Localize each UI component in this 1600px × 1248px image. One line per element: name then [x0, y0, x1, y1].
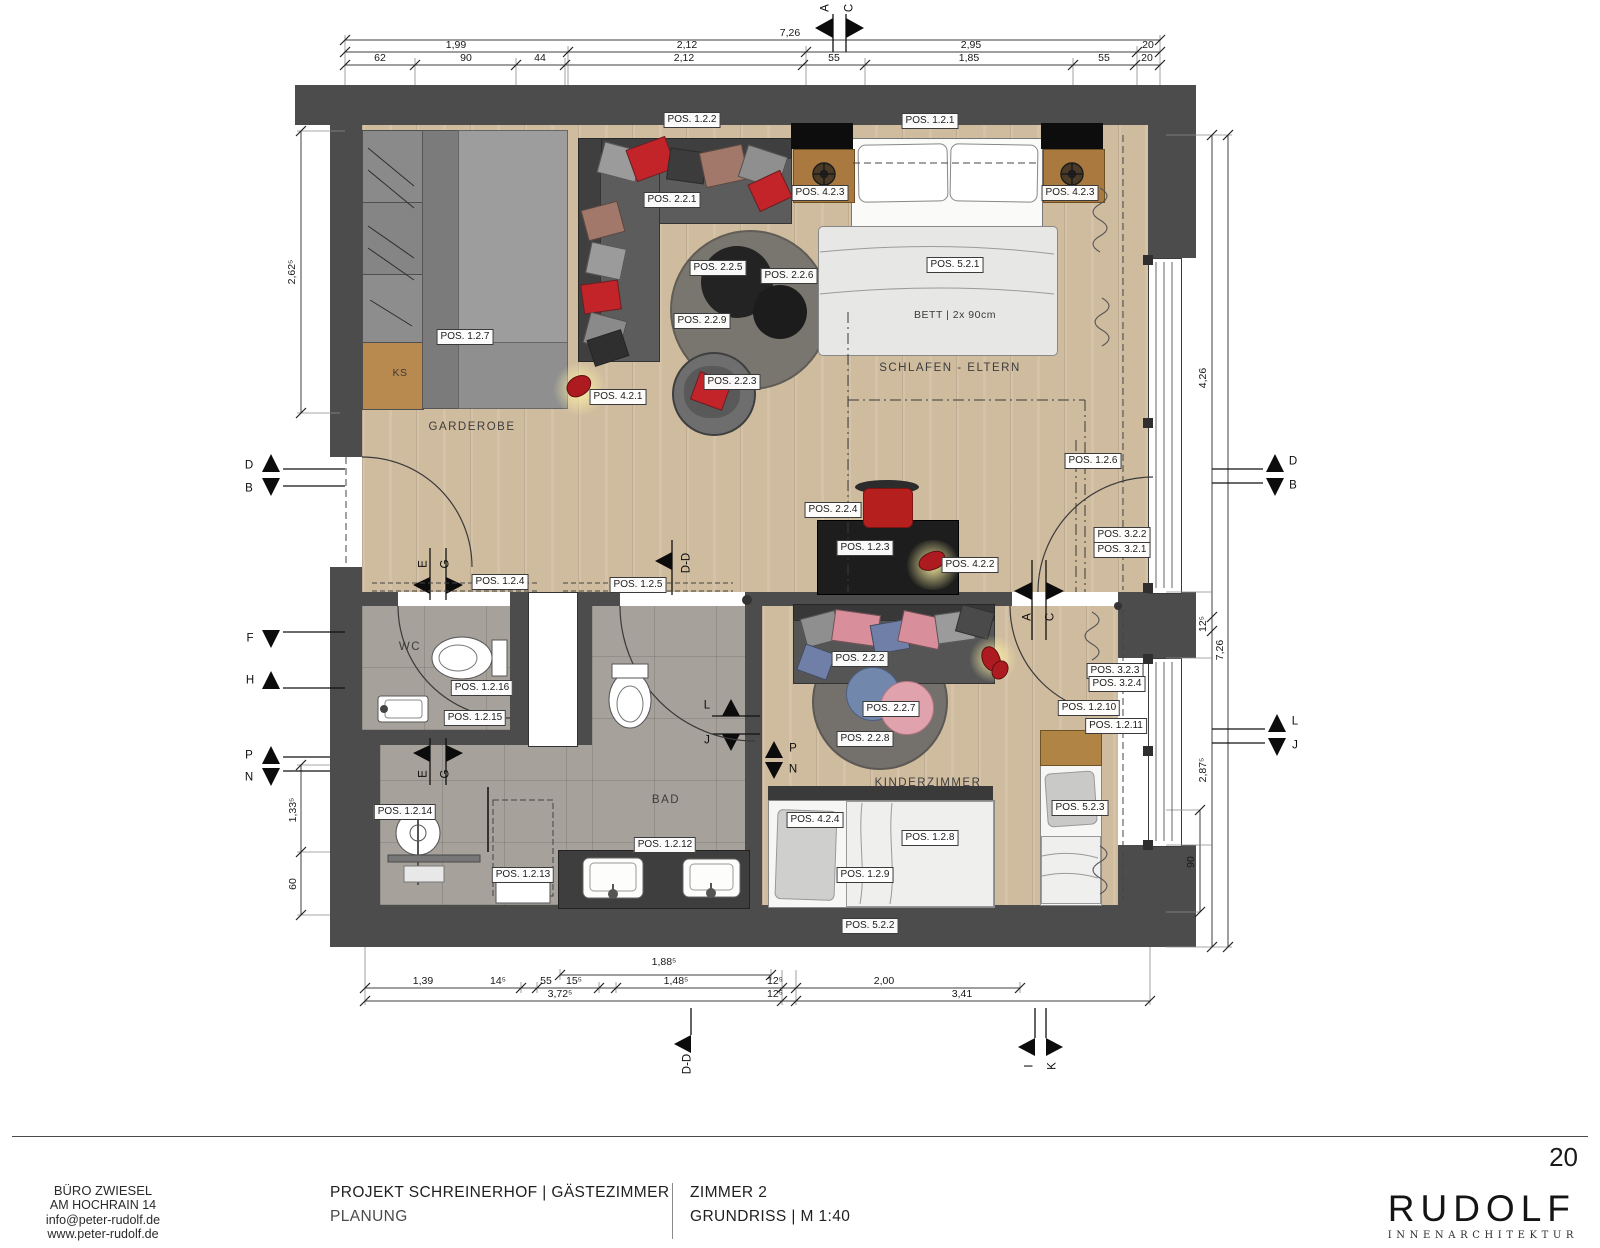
pos-label: POS. 2.2.5 [690, 260, 747, 276]
sheet-title-block: ZIMMER 2 GRUNDRISS | M 1:40 [690, 1184, 850, 1226]
section-marker-letter: H [246, 675, 254, 687]
project-title-block: PROJEKT SCHREINERHOF | GÄSTEZIMMER PLANU… [330, 1184, 669, 1226]
plan-text: BETT | 2x 90cm [914, 309, 996, 321]
dimension-text: 3,72⁵ [548, 989, 573, 1000]
sheet-title: ZIMMER 2 [690, 1184, 850, 1202]
dimension-text: 7,26 [1215, 640, 1226, 660]
dimension-text: 2,00 [874, 976, 894, 987]
sheet-title-divider [672, 1183, 673, 1239]
logo-name: RUDOLF [1388, 1190, 1578, 1227]
title-block-divider [12, 1136, 1588, 1137]
pos-label: POS. 2.2.7 [863, 701, 920, 717]
dimension-text: 55 [1098, 53, 1110, 64]
section-marker-letter: C [844, 4, 856, 12]
pos-label: POS. 1.2.5 [610, 577, 667, 593]
dimension-text: 7,26 [780, 28, 800, 39]
section-marker-letter: B [245, 483, 253, 495]
drawing-sheet: POS. 1.2.2POS. 1.2.1POS. 2.2.1POS. 4.2.3… [0, 0, 1600, 1248]
section-marker-letter: J [1292, 740, 1298, 752]
page-number: 20 [1549, 1142, 1578, 1173]
section-marker-letter: J [704, 735, 710, 747]
pos-label: POS. 2.2.9 [674, 313, 731, 329]
dimension-text: 44 [534, 53, 546, 64]
dimension-text: 62 [374, 53, 386, 64]
pos-label: POS. 4.2.1 [590, 389, 647, 405]
dimension-text: 2,12 [677, 40, 697, 51]
dimension-text: 20 [1141, 53, 1153, 64]
dimension-text: 1,48⁵ [664, 976, 689, 987]
section-marker-letter: E [418, 770, 430, 778]
pos-label: POS. 1.2.13 [492, 867, 554, 883]
dimension-text: 12⁵ [1198, 616, 1209, 632]
pos-label: POS. 4.2.3 [792, 185, 849, 201]
section-marker-letter: D-D [681, 553, 693, 573]
pos-label: POS. 1.2.16 [451, 680, 513, 696]
dimension-text: 90 [1186, 856, 1197, 868]
dimension-text: 1,33⁵ [288, 798, 299, 823]
dimension-text: 12⁵ [767, 976, 783, 987]
dimension-text: 2,12 [674, 53, 694, 64]
pos-label: POS. 4.2.2 [942, 557, 999, 573]
dimension-text: 1,39 [413, 976, 433, 987]
pos-label: POS. 2.2.6 [761, 268, 818, 284]
section-marker-letter: A [1022, 613, 1034, 621]
logo: RUDOLF INNENARCHITEKTUR [1388, 1190, 1578, 1241]
section-marker-letter: D [245, 460, 253, 472]
section-marker-letter: B [1289, 480, 1297, 492]
pos-label: POS. 3.2.1 [1094, 542, 1151, 558]
office-name: BÜRO ZWIESEL [18, 1183, 188, 1198]
dimension-text: 3,41 [952, 989, 972, 1000]
section-marker-letter: P [789, 743, 797, 755]
pos-label: POS. 1.2.12 [634, 837, 696, 853]
section-marker-letter: D [1289, 456, 1297, 468]
pos-label: POS. 1.2.1 [902, 113, 959, 129]
pos-label: POS. 4.2.3 [1042, 185, 1099, 201]
pos-label: POS. 1.2.14 [374, 804, 436, 820]
dimension-text: 1,85 [959, 53, 979, 64]
plan-linework [0, 0, 1600, 1100]
section-marker-letter: L [704, 700, 710, 712]
dimension-text: 60 [288, 878, 299, 890]
pos-label: POS. 5.2.1 [927, 257, 984, 273]
section-marker-letter: K [1047, 1062, 1059, 1070]
section-marker-letter: A [820, 4, 832, 12]
pos-label: POS. 2.2.4 [805, 502, 862, 518]
office-address-block: BÜRO ZWIESEL AM HOCHRAIN 14 info@peter-r… [18, 1183, 188, 1242]
section-marker-letter: D-D [682, 1054, 694, 1074]
office-street: AM HOCHRAIN 14 [18, 1198, 188, 1213]
pos-label: POS. 2.2.2 [832, 651, 889, 667]
pos-label: POS. 3.2.4 [1089, 676, 1146, 692]
section-marker-letter: E [418, 560, 430, 568]
dimension-text: 2,87⁵ [1198, 758, 1209, 783]
dimension-text: 4,26 [1198, 368, 1209, 388]
office-email[interactable]: info@peter-rudolf.de [18, 1213, 188, 1228]
dimension-text: 2,62⁵ [287, 260, 298, 285]
pos-label: POS. 1.2.2 [664, 112, 721, 128]
section-marker-letter: F [246, 633, 253, 645]
sheet-subtitle: GRUNDRISS | M 1:40 [690, 1208, 850, 1226]
pos-label: POS. 2.2.8 [837, 731, 894, 747]
dimension-text: 90 [460, 53, 472, 64]
pos-label: POS. 2.2.1 [644, 192, 701, 208]
dimension-text: 1,88⁵ [652, 957, 677, 968]
pos-label: POS. 5.2.2 [842, 918, 899, 934]
dimension-text: 1,99 [446, 40, 466, 51]
pos-label: POS. 1.2.10 [1058, 700, 1120, 716]
pos-label: POS. 5.2.3 [1052, 800, 1109, 816]
dimension-text: 55 [540, 976, 552, 987]
section-marker-letter: C [1045, 613, 1057, 621]
room-name: BAD [652, 794, 680, 806]
section-marker-letter: P [245, 750, 253, 762]
dimension-text: 15⁵ [566, 976, 582, 987]
section-marker-letter: I [1024, 1064, 1036, 1067]
section-marker-letter: N [789, 764, 797, 776]
office-website[interactable]: www.peter-rudolf.de [18, 1227, 188, 1242]
pos-label: POS. 1.2.3 [837, 540, 894, 556]
section-marker-letter: L [1292, 716, 1298, 728]
room-name: GARDEROBE [429, 421, 516, 433]
room-name: WC [399, 641, 421, 653]
floor-plan: POS. 1.2.2POS. 1.2.1POS. 2.2.1POS. 4.2.3… [0, 0, 1600, 1100]
pos-label: POS. 1.2.4 [472, 574, 529, 590]
pos-label: POS. 1.2.15 [444, 710, 506, 726]
pos-label: POS. 1.2.11 [1085, 718, 1147, 734]
pos-label: POS. 1.2.9 [837, 867, 894, 883]
dimension-text: 2,95 [961, 40, 981, 51]
pos-label: POS. 3.2.2 [1094, 527, 1151, 543]
project-title: PROJEKT SCHREINERHOF | GÄSTEZIMMER [330, 1184, 669, 1202]
dimension-text: 12⁵ [767, 989, 783, 1000]
project-phase: PLANUNG [330, 1208, 669, 1226]
dimension-text: 55 [828, 53, 840, 64]
room-name: KINDERZIMMER [875, 777, 982, 789]
pos-label: POS. 4.2.4 [787, 812, 844, 828]
dimension-text: 20 [1142, 40, 1154, 51]
section-marker-letter: G [440, 560, 452, 569]
pos-label: POS. 1.2.7 [437, 329, 494, 345]
pos-label: POS. 1.2.6 [1065, 453, 1122, 469]
section-marker-letter: N [245, 772, 253, 784]
pos-label: POS. 1.2.8 [902, 830, 959, 846]
room-name: SCHLAFEN - ELTERN [879, 362, 1021, 374]
pos-label: POS. 2.2.3 [704, 374, 761, 390]
dimension-text: 14⁵ [490, 976, 506, 987]
section-marker-letter: G [440, 770, 452, 779]
logo-subtitle: INNENARCHITEKTUR [1388, 1230, 1578, 1241]
plan-text: KS [392, 367, 407, 379]
